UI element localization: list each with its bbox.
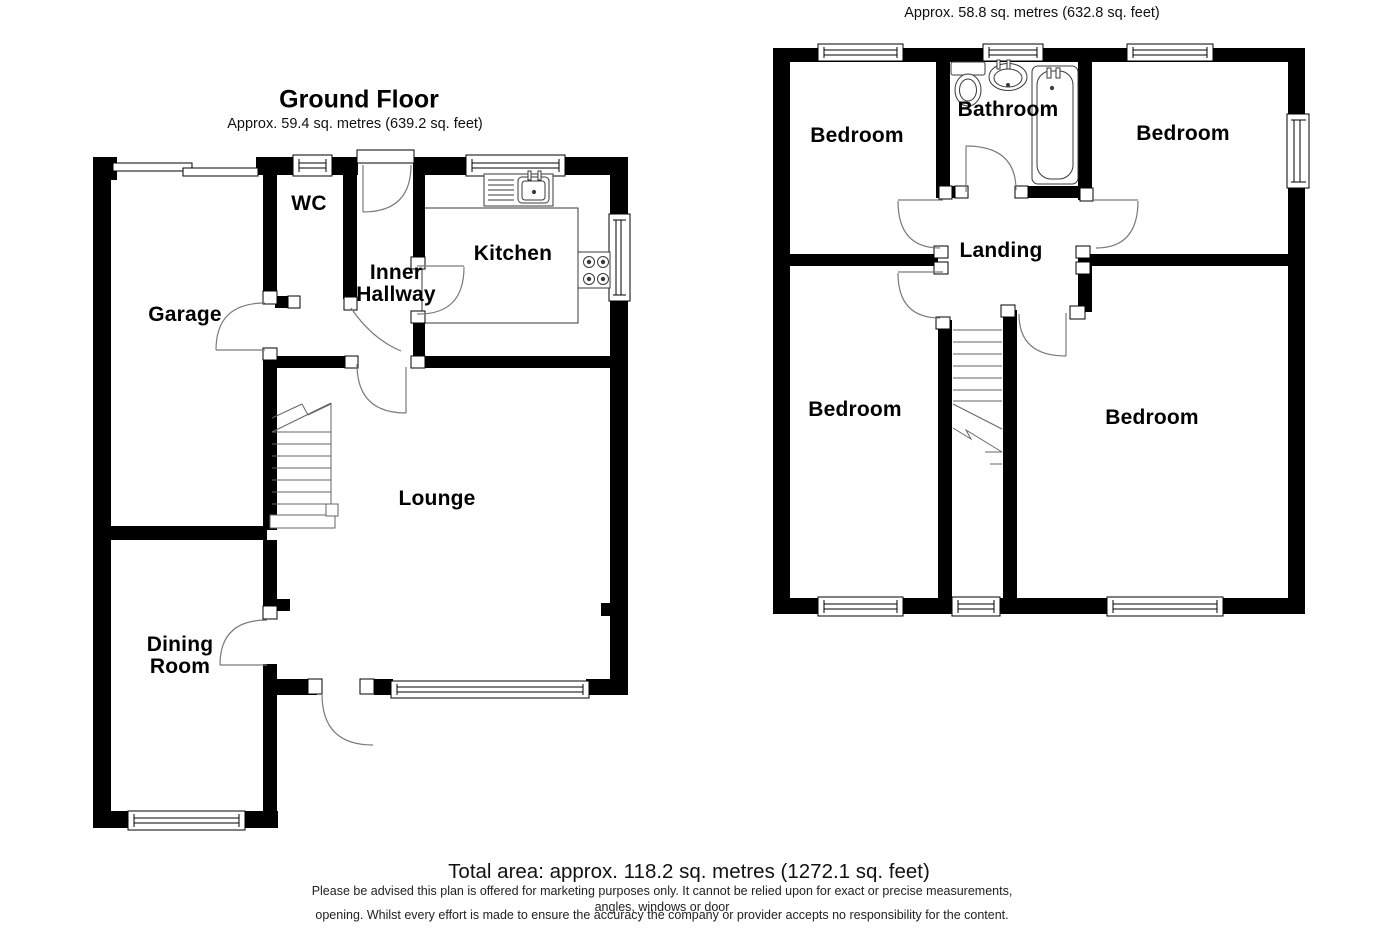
stairwell-window [952,597,1000,616]
total-area-label: Total area: approx. 118.2 sq. metres (12… [448,860,930,884]
ground-staircase [270,403,338,528]
floorplan-page: Ground Floor Approx. 59.4 sq. metres (63… [0,0,1400,932]
room-label-kitchen: Kitchen [474,243,552,265]
ground-door-jambs [263,257,425,694]
bedroom-tr-door [1092,200,1138,248]
room-label-bedroom-bottom-left: Bedroom [808,399,902,421]
room-label-dining-room: Dining Room [147,634,214,678]
room-label-bedroom-bottom-right: Bedroom [1105,407,1199,429]
disclaimer-line-2: opening. Whilst every effort is made to … [315,907,1008,923]
room-label-bedroom-top-left: Bedroom [810,125,904,147]
room-label-lounge: Lounge [398,488,475,510]
bathroom-sink [989,60,1027,91]
lounge-door [357,364,406,413]
garage-door [113,163,258,176]
bedroom-tl-door [898,200,943,248]
ground-floor-title: Ground Floor [279,86,439,115]
wc-window [293,155,332,176]
front-door [322,694,373,745]
back-door-frame [357,150,414,163]
bathroom-door [966,146,1016,192]
dining-door [220,620,267,665]
kitchen-top-window [466,155,565,176]
garage-side-door [216,303,265,350]
kitchen-sink [484,171,553,206]
room-label-wc: WC [291,193,326,215]
bedroom-tl-window [818,44,903,61]
ground-floor-area-label: Approx. 59.4 sq. metres (639.2 sq. feet) [227,116,483,132]
room-label-bathroom: Bathroom [958,99,1059,121]
bathtub [1032,66,1078,184]
kitchen-side-window [609,214,630,301]
room-label-landing: Landing [959,240,1042,262]
bedroom-br-window [1107,597,1223,616]
bedroom-tr-window [1127,44,1213,61]
dining-window [128,811,245,830]
room-label-garage: Garage [148,304,222,326]
first-staircase [953,330,1002,464]
room-label-bedroom-top-right: Bedroom [1136,123,1230,145]
bedroom-tr-side-window [1287,114,1309,188]
lounge-window [391,681,589,698]
room-label-inner-hallway: Inner Hallway [356,262,436,306]
bedroom-bl-door [898,272,943,318]
bathroom-window [983,44,1043,61]
bedroom-br-door [1019,313,1066,356]
hob [578,252,610,288]
wc-door [351,308,401,351]
back-door [363,165,411,212]
bedroom-bl-window [818,597,903,616]
first-floor-area-label: Approx. 58.8 sq. metres (632.8 sq. feet) [904,5,1160,21]
